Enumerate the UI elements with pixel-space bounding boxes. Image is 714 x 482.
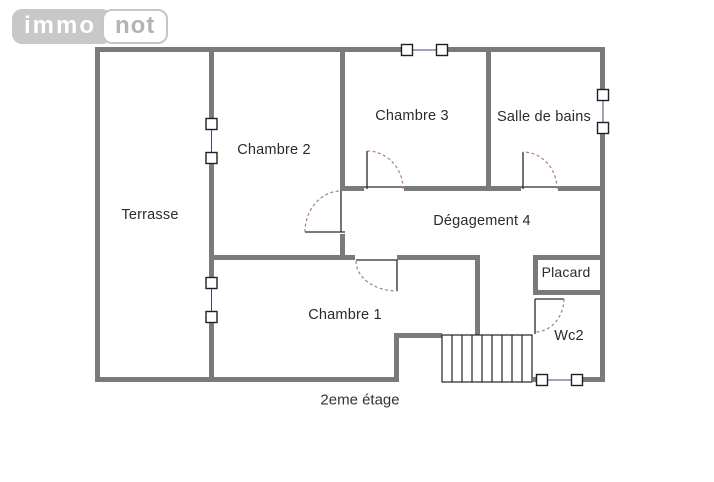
wall-left bbox=[95, 47, 100, 382]
immonot-logo: immo not bbox=[12, 9, 168, 44]
wall-top-left bbox=[95, 47, 402, 52]
wall-chambre2-lower bbox=[340, 234, 345, 258]
floor-caption: 2eme étage bbox=[320, 392, 399, 409]
room-label-chambre1: Chambre 1 bbox=[308, 307, 382, 323]
wall-corridor-top-b bbox=[404, 186, 521, 191]
wall-corridor-bottom-a bbox=[209, 255, 355, 260]
wall-terrasse-a bbox=[209, 47, 214, 119]
window-top-square-b bbox=[437, 45, 448, 56]
floorplan-page: Terrasse Chambre 2 Chambre 3 Salle de ba… bbox=[0, 0, 714, 482]
wall-bottom-wc2-b bbox=[583, 377, 605, 382]
window-right-square-b bbox=[598, 123, 609, 134]
wall-bottom-left bbox=[95, 377, 399, 382]
wall-placard-bottom bbox=[533, 290, 605, 295]
logo-not-pill: not bbox=[102, 9, 168, 44]
wall-chambre2-upper bbox=[340, 47, 345, 190]
room-label-placard: Placard bbox=[542, 264, 591, 280]
wall-chambre1-right bbox=[475, 255, 480, 335]
wall-terrasse-c bbox=[209, 323, 214, 383]
door-sdb-arc bbox=[523, 152, 557, 189]
room-label-wc2: Wc2 bbox=[554, 328, 584, 344]
window-top-square-a bbox=[402, 45, 413, 56]
door-chambre1-arc bbox=[356, 261, 397, 291]
wall-placard-left bbox=[533, 255, 538, 295]
door-degagement-arc bbox=[305, 191, 341, 232]
window-terrasse-upper-square-b bbox=[206, 153, 217, 164]
wall-corridor-bottom-b bbox=[397, 255, 480, 260]
wall-top-right bbox=[448, 47, 606, 52]
window-terrasse-upper-square-a bbox=[206, 119, 217, 130]
window-terrasse-lower-square-b bbox=[206, 312, 217, 323]
floorplan-drawing bbox=[0, 0, 714, 482]
wall-corridor-top-a bbox=[340, 186, 364, 191]
stairs-icon bbox=[442, 335, 532, 382]
wall-chambre3-sdb bbox=[486, 52, 491, 186]
wall-corridor-top-c bbox=[558, 186, 605, 191]
room-label-terrasse: Terrasse bbox=[121, 207, 178, 223]
room-label-chambre3: Chambre 3 bbox=[375, 108, 449, 124]
window-wc2-square-a bbox=[537, 375, 548, 386]
window-wc2-square-b bbox=[572, 375, 583, 386]
room-label-salle-de-bains: Salle de bains bbox=[497, 109, 591, 125]
door-chambre3-arc bbox=[367, 151, 403, 189]
room-label-chambre2: Chambre 2 bbox=[237, 142, 311, 158]
window-terrasse-lower-square-a bbox=[206, 278, 217, 289]
window-right-square-a bbox=[598, 90, 609, 101]
wall-notch-horizontal bbox=[394, 333, 442, 338]
wall-notch-vertical bbox=[394, 335, 399, 382]
wall-right-upper bbox=[600, 47, 605, 90]
logo-immo-pill: immo bbox=[12, 9, 112, 44]
wall-terrasse-b bbox=[209, 164, 214, 278]
wall-placard-top bbox=[533, 255, 605, 260]
room-label-degagement: Dégagement 4 bbox=[433, 213, 531, 229]
